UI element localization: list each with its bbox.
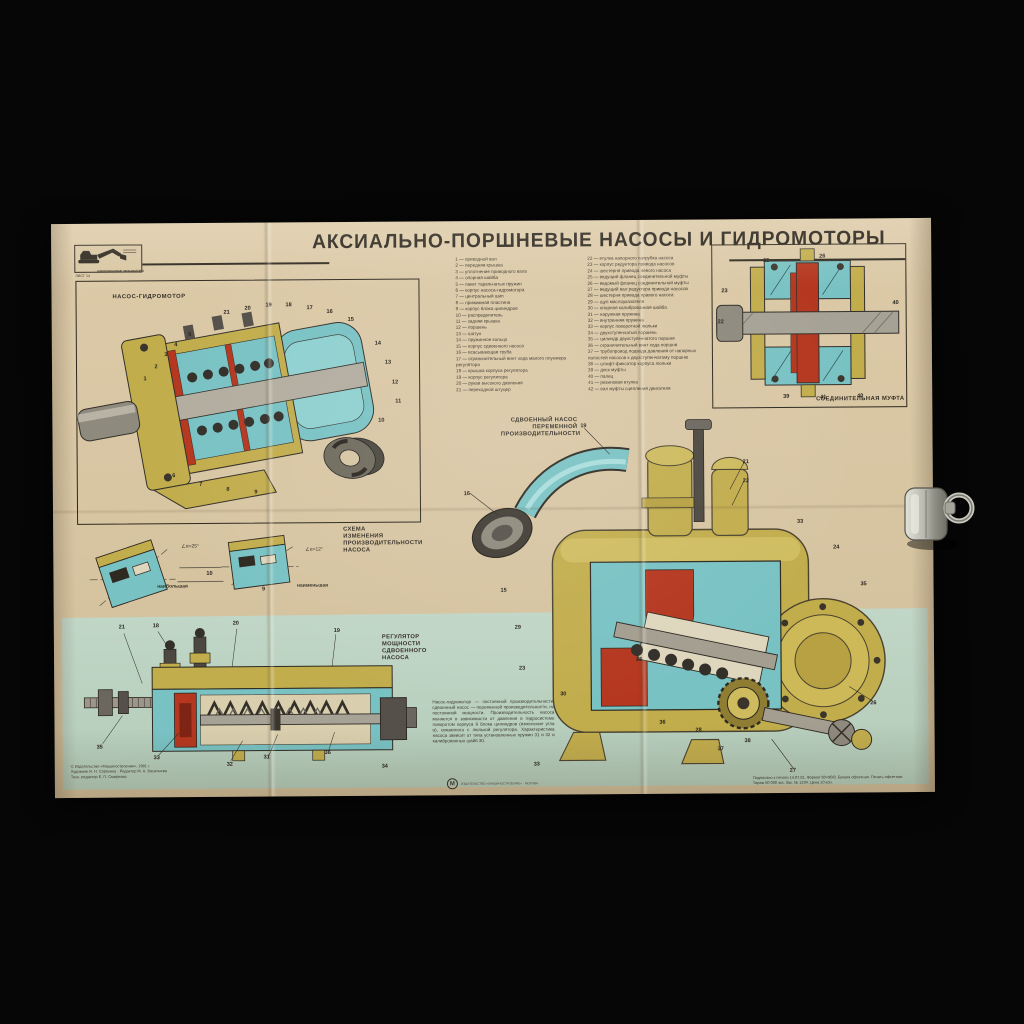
callout-number: 29 — [514, 623, 520, 629]
description-paragraph: Насос-гидромотор — постоянной производит… — [432, 699, 555, 789]
callout-number: 18 — [285, 301, 291, 307]
callout-number: 1 — [144, 375, 147, 381]
callout-number: 23 — [519, 664, 525, 670]
callout-number: 24 — [833, 543, 839, 549]
callout-number: 37 — [718, 745, 724, 751]
photo-background: АКСИАЛЬНО-ПОРШНЕВЫЕ НАСОСЫ И ГИДРОМОТОРЫ… — [0, 0, 1024, 1024]
callout-number: 33 — [797, 517, 803, 523]
callout-number: 9 — [262, 586, 265, 592]
publisher-text: ИЗДАТЕЛЬСТВО «МАШИНОСТРОЕНИЕ» · МОСКВА — [461, 781, 538, 785]
credits-block: © Издательство «Машиностроение», 1981 г.… — [71, 762, 300, 801]
callout-number: 16 — [327, 308, 333, 314]
publisher-logo-icon: М — [447, 778, 458, 789]
callout-number: 20 — [244, 304, 250, 310]
callout-number: 19 — [333, 627, 339, 633]
scheme-callouts: 109 — [83, 522, 384, 616]
callout-number: 36 — [324, 749, 330, 755]
list-line: 21 — переходной штуцер — [456, 386, 584, 393]
callout-number: 36 — [659, 719, 665, 725]
callout-number: 14 — [375, 340, 381, 346]
excavator-icon — [75, 245, 138, 265]
callout-number: 20 — [233, 620, 239, 626]
callout-number: 9 — [254, 488, 257, 494]
callout-number: 4 — [174, 341, 177, 347]
pump-motor-callouts: 123452120191817161567891413121110 — [76, 280, 420, 524]
list-line: 17 — ограничительный винт хода малого пл… — [456, 355, 584, 368]
callout-number: 21 — [743, 458, 749, 464]
poster-title: АКСИАЛЬНО-ПОРШНЕВЫЕ НАСОСЫ И ГИДРОМОТОРЫ — [312, 228, 740, 254]
callout-number: 18 — [152, 622, 158, 628]
callout-number: 33 — [153, 755, 159, 761]
callout-number: 15 — [347, 316, 353, 322]
callout-number: 3 — [164, 351, 167, 357]
callout-number: 17 — [306, 304, 312, 310]
callout-number: 16 — [464, 490, 470, 496]
series-label: ОДНОКОВШОВЫЕ ЭКСКАВАТОРЫ — [97, 270, 119, 273]
coupling-title: СОЕДИНИТЕЛЬНАЯ МУФТА — [816, 395, 904, 402]
callout-number: 21 — [119, 624, 125, 630]
callout-number: 40 — [893, 299, 899, 305]
callout-number: 31 — [264, 754, 270, 760]
callout-number: 22 — [743, 477, 749, 483]
list-line: Техн. редактор Е. П. Смирнова — [71, 773, 301, 780]
series-logo-box: ОДНОКОВШОВЫЕ ЭКСКАВАТОРЫ — [74, 244, 142, 272]
poster: АКСИАЛЬНО-ПОРШНЕВЫЕ НАСОСЫ И ГИДРОМОТОРЫ… — [51, 218, 935, 798]
callout-number: 19 — [265, 302, 271, 308]
list-line: Тираж 50 000 экз. Зак. № 1234. Цена 10 к… — [753, 779, 932, 785]
callout-number: 10 — [206, 570, 212, 576]
callout-number: 27 — [790, 767, 796, 773]
callout-number: 28 — [695, 726, 701, 732]
regulator-callouts: 21182019353332313634 — [82, 622, 418, 782]
list-line: 37 — трубопровод подвода давления от нап… — [588, 348, 706, 361]
callout-number: 15 — [500, 586, 506, 592]
callout-number: 5 — [188, 331, 191, 337]
scheme-area: ∠α=25° ∠α=12° наибольшая наименьшая 109 — [83, 522, 384, 616]
callout-number: 34 — [381, 762, 387, 768]
callout-number: 23 — [721, 288, 727, 294]
callout-number: 19 — [580, 422, 586, 428]
callout-number: 8 — [227, 486, 230, 492]
callout-number: 21 — [224, 309, 230, 315]
callout-number: 39 — [783, 392, 789, 398]
callout-number: 25 — [763, 257, 769, 263]
imprint-block: Подписано к печати 14.07.81. Формат 60×9… — [753, 774, 931, 800]
callout-number: 10 — [379, 417, 385, 423]
regulator-drawing: 21182019353332313634 — [82, 622, 418, 782]
callout-number: 38 — [745, 737, 751, 743]
callout-number: 6 — [172, 472, 175, 478]
publisher-emblem: М ИЗДАТЕЛЬСТВО «МАШИНОСТРОЕНИЕ» · МОСКВА — [447, 777, 645, 789]
callout-number: 26 — [870, 699, 876, 705]
callout-number: 2 — [154, 363, 157, 369]
scheme-title: СХЕМА ИЗМЕНЕНИЯ ПРОИЗВОДИТЕЛЬНОСТИ НАСОС… — [343, 526, 407, 554]
regulator-title: РЕГУЛЯТОР МОЩНОСТИ СДВОЕННОГО НАСОСА — [382, 633, 434, 661]
callout-number: 12 — [392, 378, 398, 384]
callout-number: 35 — [860, 580, 866, 586]
sheet-label: ЛИСТ 14 — [75, 274, 90, 278]
coupling-callouts: 2322252640394140 — [712, 244, 906, 407]
title-rule-left — [141, 262, 329, 265]
list-line: 42 — вал муфты сцепления двигателя — [588, 385, 706, 392]
callout-number: 26 — [819, 253, 825, 259]
panel-coupling: 2322252640394140 — [711, 243, 907, 408]
binder-clip-icon — [893, 468, 989, 560]
panel-pump-motor: НАСОС-ГИДРОМОТОР — [75, 279, 421, 525]
callout-number: 11 — [396, 398, 402, 404]
callout-number: 22 — [717, 318, 723, 324]
callout-number: 13 — [385, 359, 391, 365]
callout-number: 30 — [560, 690, 566, 696]
callout-number: 35 — [96, 744, 102, 750]
callout-number: 25 — [636, 656, 642, 662]
callout-number: 7 — [199, 481, 202, 487]
